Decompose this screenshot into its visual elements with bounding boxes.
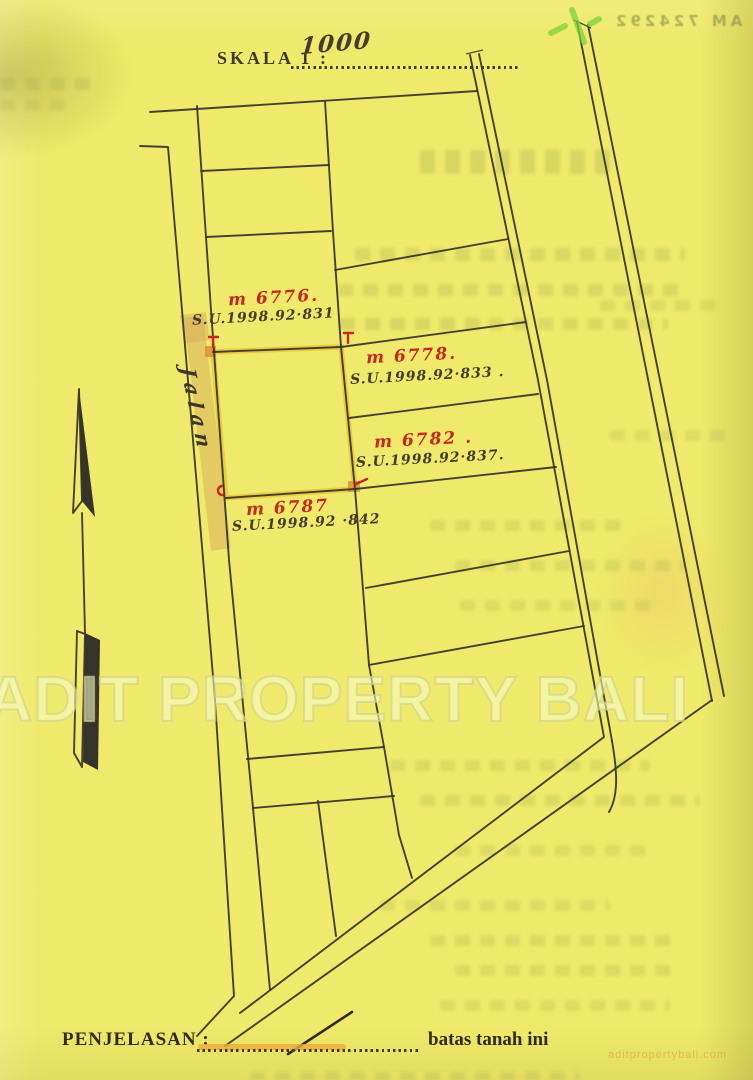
legend-label: PENJELASAN : <box>62 1029 210 1051</box>
green-highlighter-marks <box>551 10 599 42</box>
parcel-map-drawing <box>0 0 753 1080</box>
legend-caption: batas tanah ini <box>428 1029 548 1051</box>
watermark-text: ADIT PROPERTY BALI <box>0 662 689 736</box>
scanned-survey-page: SKALA 1 : 1000 AM 724292 m 6776. S.U.199… <box>0 0 753 1080</box>
subject-plot-highlight <box>205 346 360 498</box>
scale-dotted-line <box>291 66 518 69</box>
bleedthrough-serial: AM 724292 <box>612 12 742 30</box>
corner-watermark: aditpropertybali.com <box>608 1049 727 1061</box>
legend-dotted-line <box>197 1049 419 1052</box>
parcel-boundary-lines <box>140 20 724 1046</box>
